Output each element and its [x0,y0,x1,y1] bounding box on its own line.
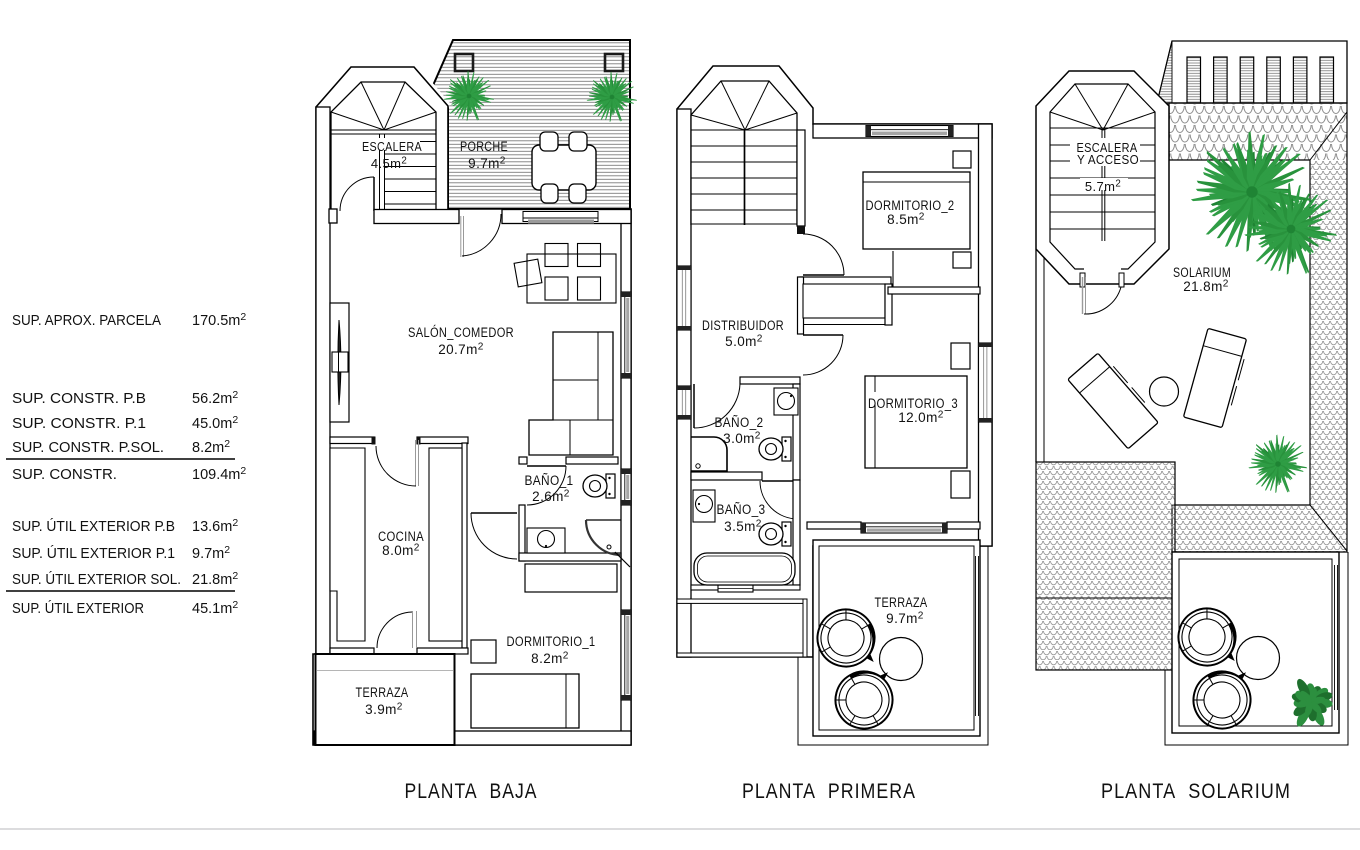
svg-text:BAÑO_3: BAÑO_3 [717,502,766,517]
svg-text:DORMITORIO_1: DORMITORIO_1 [507,634,596,649]
svg-text:SUP. CONSTR.: SUP. CONSTR. [12,467,117,483]
svg-text:20.7m2: 20.7m2 [438,342,484,358]
svg-text:BAÑO_2: BAÑO_2 [715,415,764,430]
svg-text:PLANTA SOLARIUM: PLANTA SOLARIUM [1101,780,1291,803]
svg-text:DISTRIBUIDOR: DISTRIBUIDOR [702,318,784,333]
svg-text:SUP. ÚTIL EXTERIOR SOL.: SUP. ÚTIL EXTERIOR SOL. [12,571,181,588]
svg-text:SUP. CONSTR. P.B: SUP. CONSTR. P.B [12,391,146,407]
svg-text:45.0m2: 45.0m2 [192,414,238,432]
svg-text:SUP. CONSTR. P.1: SUP. CONSTR. P.1 [12,416,146,432]
svg-text:DORMITORIO_2: DORMITORIO_2 [866,198,955,213]
svg-text:21.8m2: 21.8m2 [192,570,238,588]
svg-text:170.5m2: 170.5m2 [192,311,246,329]
svg-text:PLANTA BAJA: PLANTA BAJA [405,780,538,803]
svg-text:SUP. APROX. PARCELA: SUP. APROX. PARCELA [12,313,161,329]
svg-text:Y ACCESO: Y ACCESO [1077,152,1139,167]
svg-text:PORCHE: PORCHE [460,139,508,154]
svg-text:109.4m2: 109.4m2 [192,465,246,483]
svg-text:PLANTA PRIMERA: PLANTA PRIMERA [742,780,916,803]
svg-text:21.8m2: 21.8m2 [1183,279,1229,295]
svg-text:SALÓN_COMEDOR: SALÓN_COMEDOR [408,325,514,340]
svg-text:TERRAZA: TERRAZA [356,685,409,700]
svg-text:12.0m2: 12.0m2 [898,410,944,426]
svg-text:TERRAZA: TERRAZA [875,595,928,610]
svg-text:SUP. ÚTIL EXTERIOR P.B: SUP. ÚTIL EXTERIOR P.B [12,518,175,535]
svg-text:13.6m2: 13.6m2 [192,517,238,535]
svg-text:DORMITORIO_3: DORMITORIO_3 [868,396,958,411]
svg-text:SUP. ÚTIL EXTERIOR P.1: SUP. ÚTIL EXTERIOR P.1 [12,545,175,562]
svg-text:SUP. CONSTR. P.SOL.: SUP. CONSTR. P.SOL. [12,440,164,456]
svg-text:56.2m2: 56.2m2 [192,389,238,407]
svg-text:45.1m2: 45.1m2 [192,599,238,617]
svg-text:SUP. ÚTIL EXTERIOR: SUP. ÚTIL EXTERIOR [12,600,144,617]
svg-text:BAÑO_1: BAÑO_1 [525,473,574,488]
svg-text:ESCALERA: ESCALERA [362,139,422,154]
